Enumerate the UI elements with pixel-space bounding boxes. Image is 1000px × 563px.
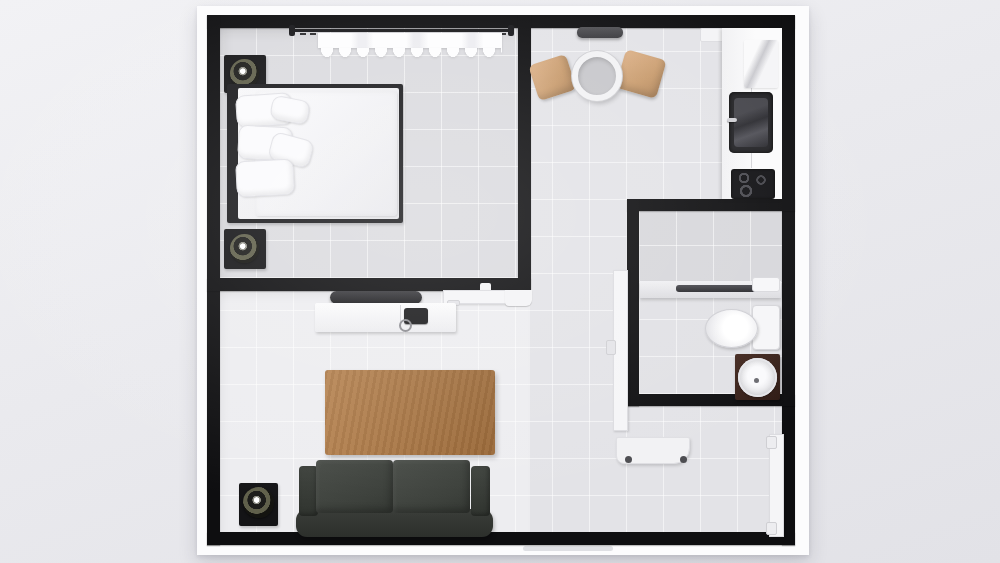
wall-outer-top [207,15,795,28]
faucet [727,118,737,122]
bathroom-door-handle [606,340,616,355]
telephone-cord-ring [399,319,412,332]
sofa-armrest-right [471,466,490,516]
sofa-cushion-left [316,460,393,513]
cooktop [731,169,775,199]
desk-leg [680,456,687,463]
sofa-cushion-right [393,460,470,513]
desk-leg [625,456,632,463]
kitchen-sink [729,92,773,153]
curtain-rod [292,29,513,32]
coffee-table [325,370,495,455]
wall-bedroom-right [518,15,531,291]
wall-bathroom-top [627,199,795,211]
doormat [523,546,613,551]
table-lamp-living [243,487,274,518]
sofa [296,457,493,537]
double-bed [227,84,403,223]
curtain [318,33,502,48]
door-hinge-bottom [766,522,777,535]
wall-shelf-dark [577,27,623,38]
tv-console [315,303,456,332]
dining-table [572,51,622,101]
toilet-bowl [705,309,758,348]
sink-basin [734,98,768,147]
pillow [235,159,295,198]
floor-plan-stage [0,0,1000,563]
shower-area [639,211,782,283]
door-hinge-top [766,436,777,449]
table-lamp-bedroom-bottom [230,234,259,263]
sofa-base [296,509,493,537]
curtain-rod-cap-right [508,25,514,36]
drain-dot [754,378,759,383]
tall-cabinet [744,40,778,88]
door-jamb [505,290,532,306]
wall-bathroom-left [627,199,639,406]
shower-tray [752,277,780,292]
curtain-rod-cap-left [289,25,295,36]
